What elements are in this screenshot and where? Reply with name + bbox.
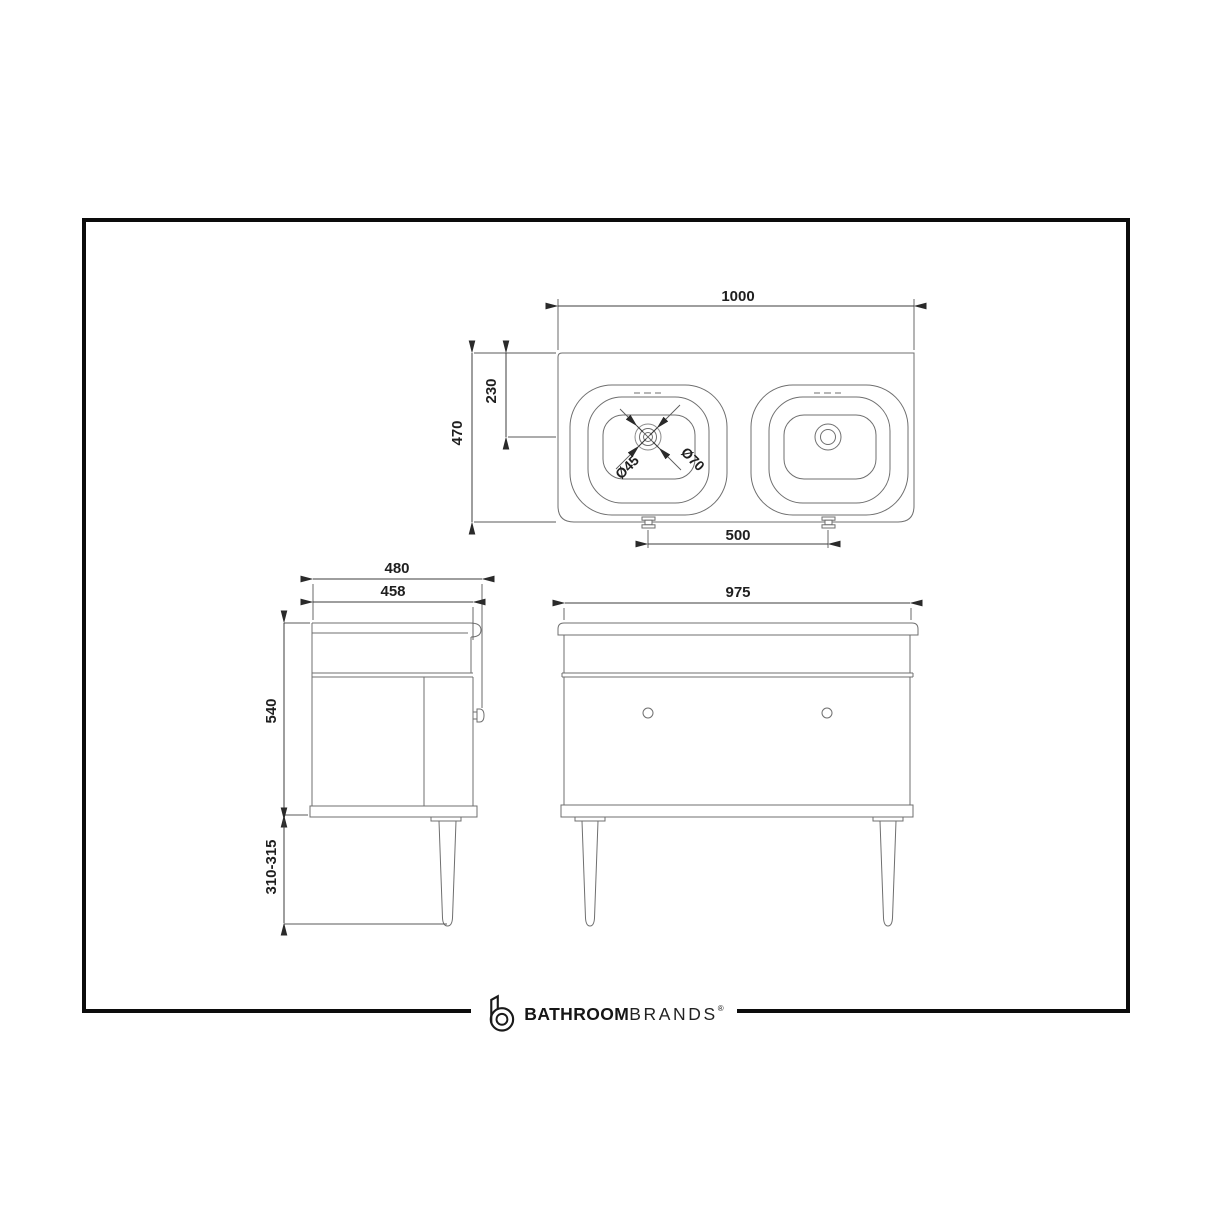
dim-front-width-label: 975 [725, 584, 750, 601]
front-right-knob [822, 708, 832, 718]
side-dim-carcase-depth: 458 [313, 583, 473, 640]
side-knob [473, 709, 484, 722]
front-right-foot-plate [873, 817, 903, 821]
front-plinth [561, 805, 913, 817]
dim-side-leg-height-label: 310-315 [263, 839, 280, 894]
plan-dim-bowl-centre: 230 [483, 353, 556, 437]
side-plinth [310, 806, 477, 817]
brand-logo-mark [484, 994, 517, 1034]
side-dim-leg-height: 310-315 [263, 820, 447, 924]
registered-trademark-symbol: ® [718, 1004, 724, 1013]
plan-right-basin [751, 385, 908, 515]
plan-view: Ø45 Ø70 1000 [449, 288, 914, 548]
drain-diameter-callouts: Ø45 Ø70 [612, 405, 708, 482]
brand-word-bathroom: BATHROOM [524, 1004, 629, 1024]
plan-left-basin [570, 385, 727, 515]
front-left-knob [643, 708, 653, 718]
brand-word-brands: BRANDS [629, 1004, 718, 1024]
brand-wordmark: BATHROOMBRANDS® [524, 1004, 723, 1025]
dim-side-overall-depth-label: 480 [384, 560, 409, 577]
dim-waste: Ø70 [678, 444, 708, 474]
dim-side-carcase-depth-label: 458 [380, 583, 405, 600]
dim-plan-width-label: 1000 [721, 288, 754, 305]
plan-dim-bowl-centres: 500 [648, 527, 828, 548]
dim-side-carcase-height-label: 540 [263, 698, 280, 723]
front-left-leg [582, 821, 598, 926]
dim-plan-depth-label: 470 [449, 420, 466, 445]
side-dim-carcase-height: 540 [263, 623, 310, 815]
plan-dim-depth: 470 [449, 353, 556, 522]
plan-counter-outline [558, 353, 914, 522]
plan-dim-width: 1000 [558, 288, 914, 350]
front-right-leg [880, 821, 896, 926]
front-view: 975 [558, 584, 918, 926]
bathroom-brands-logo: BATHROOMBRANDS® [471, 988, 737, 1040]
side-view: 480 458 540 310-315 [263, 560, 484, 926]
front-left-foot-plate [575, 817, 605, 821]
dim-plan-bowl-centre-label: 230 [483, 378, 500, 403]
side-foot-plate [431, 817, 461, 821]
side-leg [439, 821, 456, 926]
front-dim-width: 975 [564, 584, 911, 620]
front-worktop-lip [558, 623, 918, 635]
dim-plan-bowl-centres-label: 500 [725, 527, 750, 544]
